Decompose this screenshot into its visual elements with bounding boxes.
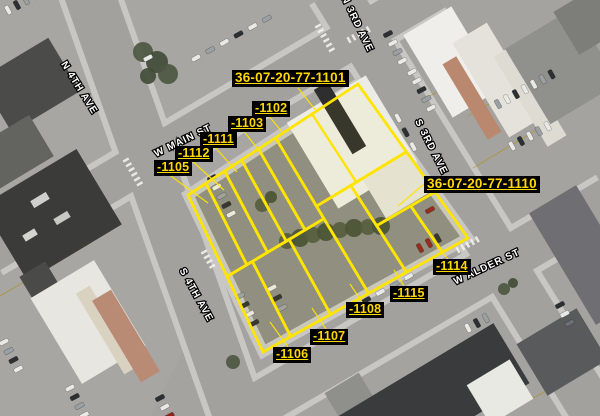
tree [508,278,518,288]
tree [226,355,240,369]
parcel-label-1101[interactable]: 36-07-20-77-1101 [232,70,349,87]
parcel-label-1105[interactable]: -1105 [154,160,192,176]
parcel-label-1108[interactable]: -1108 [346,302,384,318]
parcel-label-1106[interactable]: -1106 [273,347,311,363]
parcel-label-1102[interactable]: -1102 [252,101,290,117]
tree [140,68,156,84]
tree [498,283,510,295]
tree [158,64,178,84]
parcel-label-1103[interactable]: -1103 [228,116,266,132]
parcel-label-1107[interactable]: -1107 [310,329,348,345]
parcel-label-1110[interactable]: 36-07-20-77-1110 [424,176,540,193]
map-viewport[interactable]: N 4TH AVEN 3RD AVEW MAIN STS 3RD AVES 4T… [0,0,600,416]
parcel-label-1115[interactable]: -1115 [390,286,428,302]
parcel-label-1114[interactable]: -1114 [433,259,471,275]
